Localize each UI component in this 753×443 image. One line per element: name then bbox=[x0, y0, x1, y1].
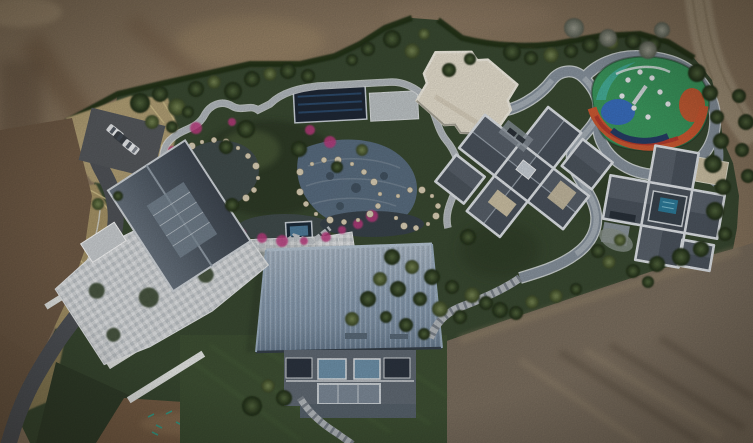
aerial-photo bbox=[0, 0, 753, 443]
vignette bbox=[0, 0, 753, 443]
aerial-photo-stage bbox=[0, 0, 753, 443]
